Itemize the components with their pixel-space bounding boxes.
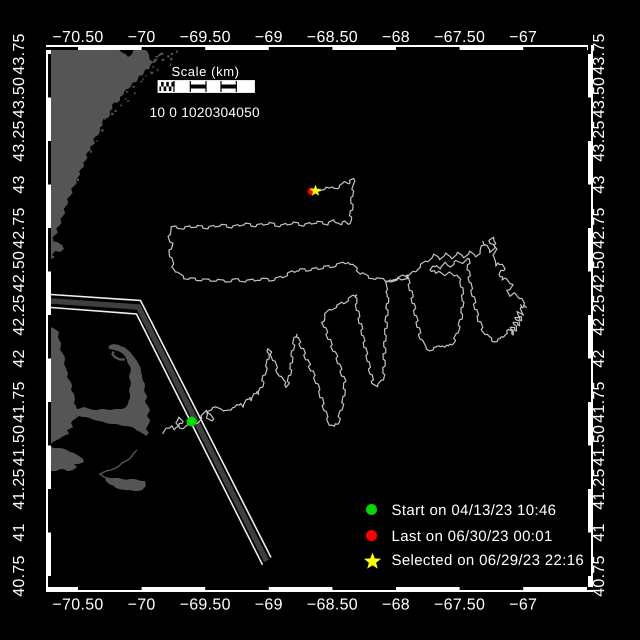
svg-text:43.75: 43.75 (11, 33, 28, 75)
svg-text:−68.50: −68.50 (307, 29, 358, 46)
svg-text:−69.50: −69.50 (180, 29, 231, 46)
svg-text:Start on 04/13/23 10:46: Start on 04/13/23 10:46 (392, 502, 557, 519)
svg-text:43.25: 43.25 (11, 120, 28, 162)
svg-text:41.50: 41.50 (11, 425, 28, 467)
svg-text:41: 41 (11, 523, 28, 541)
svg-text:40.75: 40.75 (11, 555, 28, 597)
svg-text:43.75: 43.75 (591, 33, 608, 75)
svg-text:42.50: 42.50 (11, 251, 28, 293)
svg-text:43.25: 43.25 (591, 120, 608, 162)
svg-text:42.25: 42.25 (11, 294, 28, 336)
svg-text:40.75: 40.75 (591, 555, 608, 597)
svg-text:−70: −70 (128, 29, 156, 46)
svg-text:−67.50: −67.50 (434, 597, 485, 614)
svg-text:−70: −70 (128, 597, 156, 614)
svg-text:43: 43 (591, 175, 608, 193)
svg-text:43.50: 43.50 (11, 77, 28, 119)
svg-text:43: 43 (11, 175, 28, 193)
svg-text:41: 41 (591, 523, 608, 541)
svg-text:−69.50: −69.50 (180, 597, 231, 614)
svg-text:41.75: 41.75 (591, 381, 608, 423)
svg-text:41.25: 41.25 (591, 468, 608, 510)
svg-text:−69: −69 (255, 29, 283, 46)
svg-text:41.50: 41.50 (591, 425, 608, 467)
svg-text:Last on 06/30/23 00:01: Last on 06/30/23 00:01 (392, 528, 553, 545)
svg-text:41.25: 41.25 (11, 468, 28, 510)
svg-text:42.50: 42.50 (591, 251, 608, 293)
svg-text:−68.50: −68.50 (307, 597, 358, 614)
svg-text:−68: −68 (382, 597, 410, 614)
svg-text:43.50: 43.50 (591, 77, 608, 119)
svg-text:Selected on 06/29/23 22:16: Selected on 06/29/23 22:16 (392, 552, 585, 569)
svg-text:42: 42 (11, 349, 28, 367)
svg-text:−70.50: −70.50 (52, 29, 103, 46)
svg-text:Scale (km): Scale (km) (171, 64, 239, 79)
svg-text:−69: −69 (255, 597, 283, 614)
svg-text:42.25: 42.25 (591, 294, 608, 336)
svg-text:−67.50: −67.50 (434, 29, 485, 46)
svg-text:−70.50: −70.50 (52, 597, 103, 614)
svg-text:−67: −67 (509, 29, 537, 46)
svg-text:10 0 1020304050: 10 0 1020304050 (150, 105, 260, 120)
svg-text:42.75: 42.75 (591, 207, 608, 249)
svg-text:42: 42 (591, 349, 608, 367)
svg-text:−67: −67 (509, 597, 537, 614)
svg-text:−68: −68 (382, 29, 410, 46)
svg-text:42.75: 42.75 (11, 207, 28, 249)
svg-text:41.75: 41.75 (11, 381, 28, 423)
